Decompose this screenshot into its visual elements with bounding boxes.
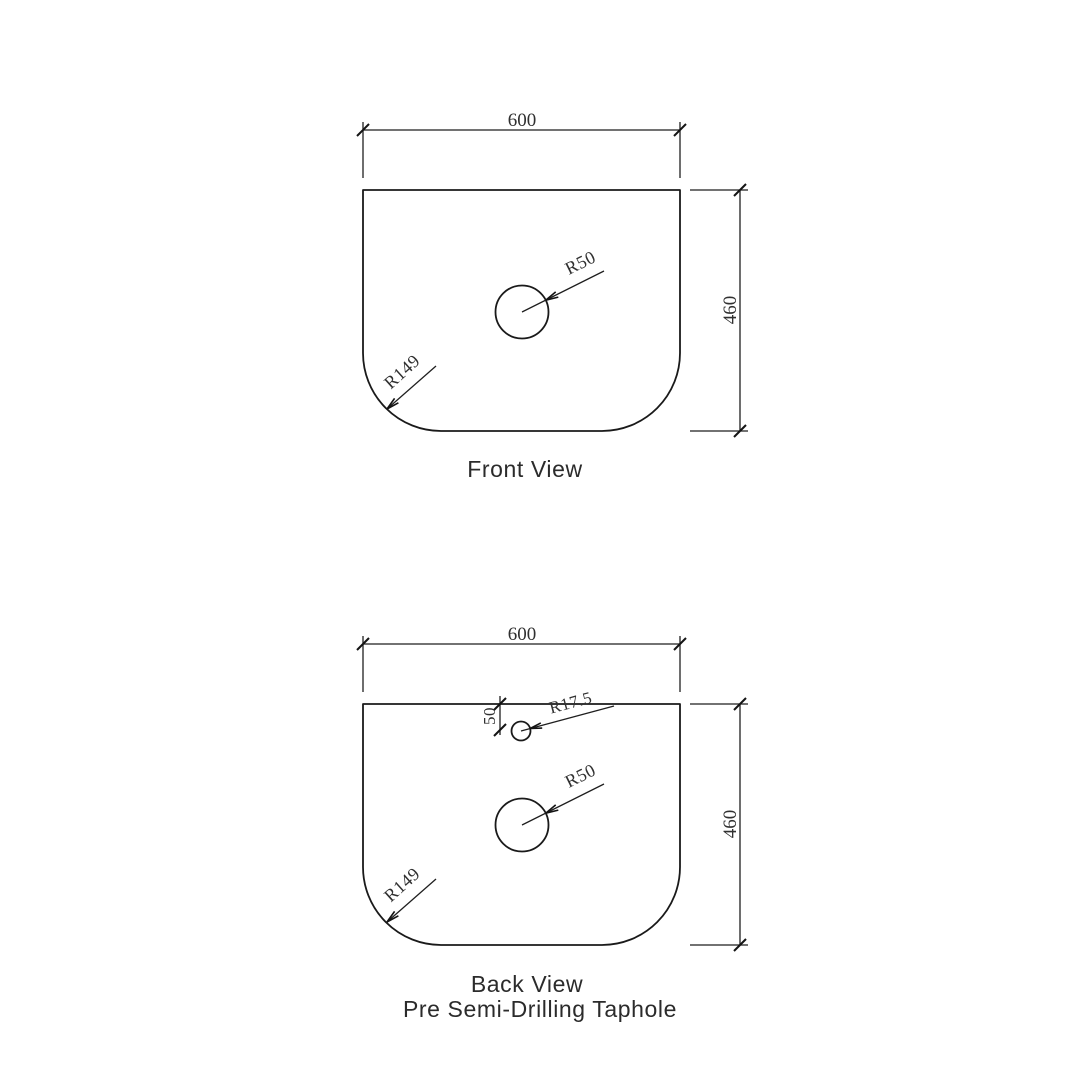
front-view: 600 460 R50 R149 Front View xyxy=(357,110,748,482)
leader-arrowhead xyxy=(546,292,559,300)
back-width-value: 600 xyxy=(508,624,537,645)
back-corner-radius-label: R149 xyxy=(380,863,424,905)
back-corner-radius-leader: R149 xyxy=(380,863,436,922)
front-height-dimension: 460 xyxy=(690,184,748,437)
front-width-value: 600 xyxy=(508,110,537,131)
front-corner-radius-label: R149 xyxy=(380,350,424,392)
front-height-value: 460 xyxy=(720,296,741,325)
back-view-subtitle: Pre Semi-Drilling Taphole xyxy=(403,996,677,1022)
back-taphole-radius-leader: R17.5 xyxy=(521,688,614,731)
back-taphole-offset-dimension: 50 xyxy=(480,696,506,736)
back-height-dimension: 460 xyxy=(690,698,748,951)
back-hole-radius-leader: R50 xyxy=(522,760,604,825)
back-view: 600 460 50 R17.5 R50 xyxy=(357,624,748,1022)
technical-drawing-canvas: 600 460 R50 R149 Front View xyxy=(0,0,1080,1080)
leader-arrowhead xyxy=(546,805,559,813)
front-view-title: Front View xyxy=(467,456,583,482)
back-view-title: Back View xyxy=(471,971,583,997)
back-hole-radius-label: R50 xyxy=(562,760,599,792)
front-width-dimension: 600 xyxy=(357,110,686,178)
back-width-dimension: 600 xyxy=(357,624,686,692)
leader-line xyxy=(522,784,604,825)
front-outline xyxy=(363,190,680,431)
countertop-drawing: 600 460 R50 R149 Front View xyxy=(0,0,1080,1080)
front-corner-radius-leader: R149 xyxy=(380,350,436,409)
front-hole-radius-label: R50 xyxy=(562,247,599,279)
leader-line xyxy=(522,271,604,312)
back-taphole-offset-value: 50 xyxy=(480,707,499,725)
front-hole-radius-leader: R50 xyxy=(522,247,604,312)
back-height-value: 460 xyxy=(720,810,741,839)
